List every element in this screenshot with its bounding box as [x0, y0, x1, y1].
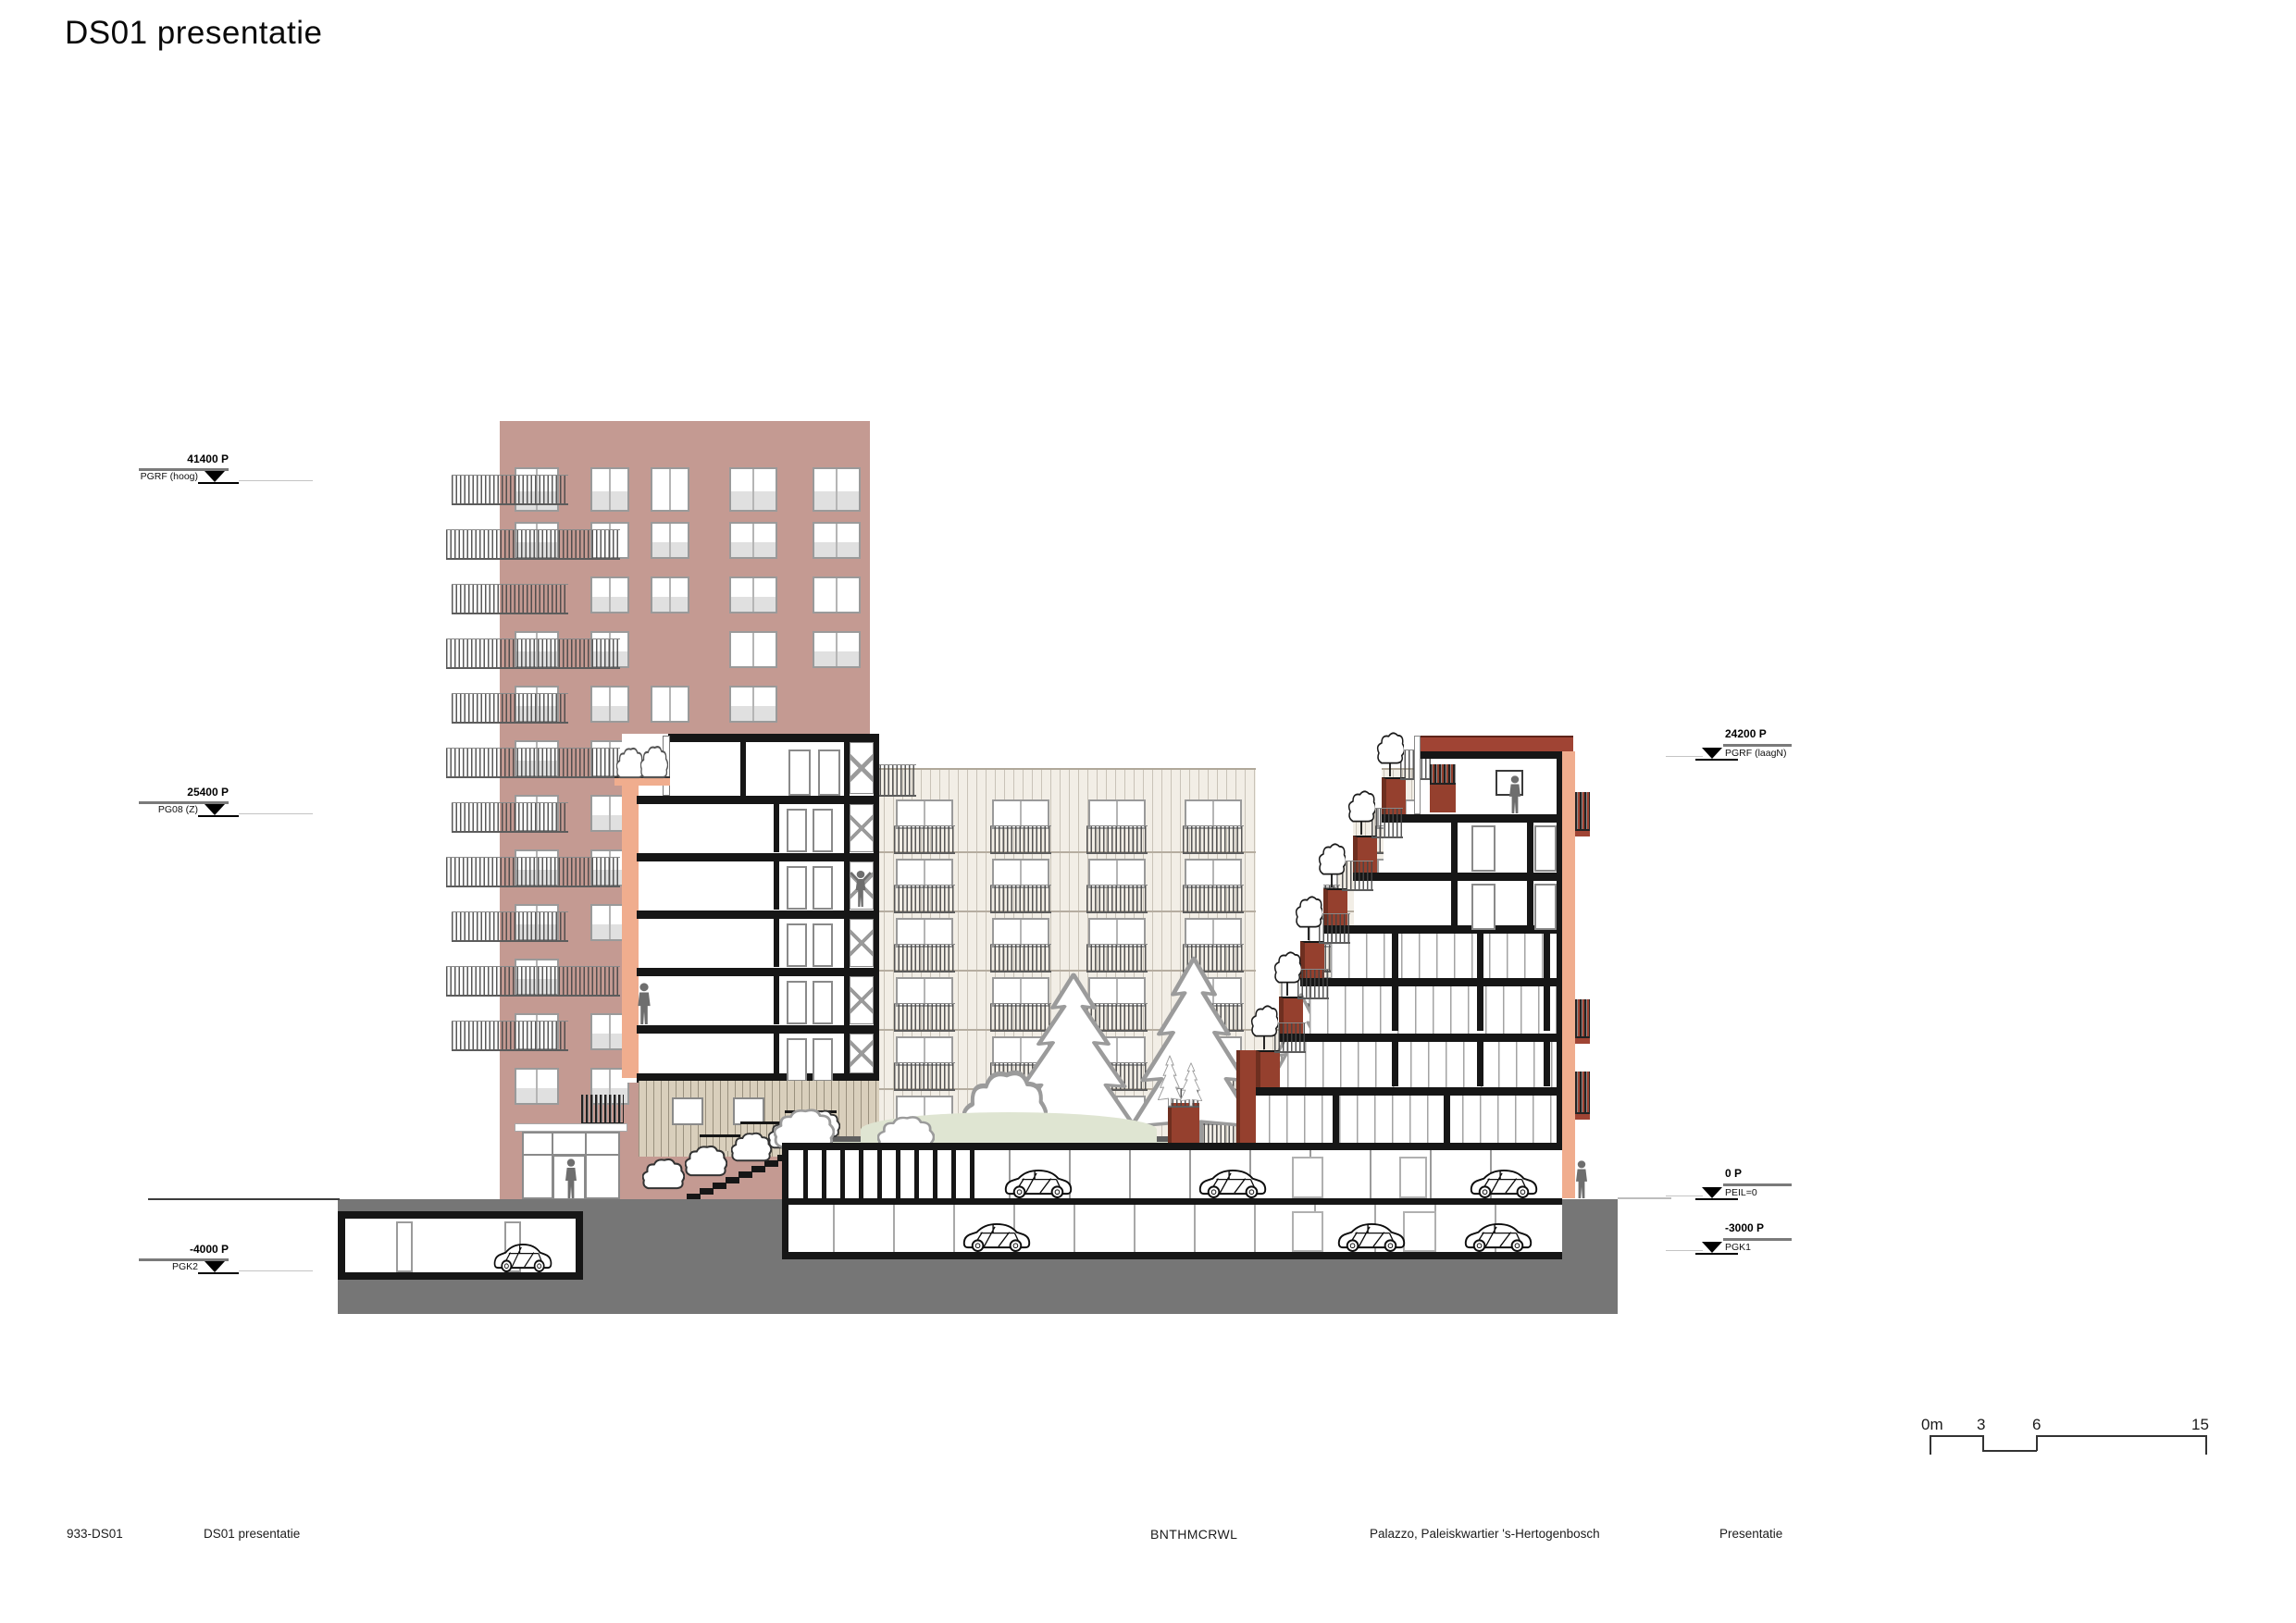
level-value: -4000 P — [139, 1243, 229, 1256]
window-mullion — [1020, 801, 1022, 827]
facade-balcony-railing — [894, 1003, 955, 1032]
tower-balcony-railing — [452, 1021, 568, 1051]
east-balcony-railing — [1575, 999, 1590, 1038]
east-facade-strip — [1562, 751, 1575, 1198]
window-mullion — [609, 797, 611, 830]
level-underline — [198, 482, 239, 484]
facade-balcony-railing — [1183, 885, 1244, 913]
window — [729, 631, 777, 668]
podium-window — [672, 1097, 703, 1125]
presentation-sheet: DS01 presentatie 41400 P PGRF (hoog) 254… — [0, 0, 2296, 1623]
parking-column — [970, 1150, 974, 1198]
window — [729, 467, 777, 512]
window — [590, 576, 629, 613]
tower-balcony-railing — [446, 638, 620, 669]
scale-label-3: 3 — [1977, 1416, 1985, 1434]
window-mullion — [924, 979, 925, 1005]
tower-balcony-railing — [452, 475, 568, 505]
parking-mid-slab — [788, 1198, 1562, 1205]
floor-slab — [1279, 1034, 1562, 1042]
car-icon — [1337, 1221, 1406, 1252]
parking-column — [1074, 1205, 1075, 1252]
tower-balcony-railing — [452, 693, 568, 724]
scale-label-6: 6 — [2032, 1416, 2041, 1434]
scale-tick — [2205, 1435, 2207, 1455]
window-mullion — [609, 469, 611, 510]
scale-step — [2036, 1435, 2038, 1451]
person-icon — [635, 983, 653, 1025]
terrace-railing — [1342, 861, 1373, 891]
parking-column — [1430, 1150, 1432, 1198]
parking-column — [803, 1150, 808, 1198]
window-mullion — [836, 469, 838, 510]
floor-slab — [637, 796, 879, 804]
terrace-tree-icon — [1347, 784, 1375, 836]
tower-balcony-railing — [446, 748, 620, 778]
level-underline — [1695, 759, 1738, 761]
east-balcony-railing — [1575, 1072, 1590, 1114]
parking-column — [822, 1150, 826, 1198]
base-wall — [1236, 1050, 1256, 1143]
level-name: PGK2 — [120, 1261, 198, 1272]
interior-wall — [1451, 823, 1458, 873]
parking-column — [893, 1205, 895, 1252]
level-triangle-icon — [205, 804, 225, 815]
window — [729, 522, 777, 559]
interior-wall — [774, 919, 779, 967]
person-icon — [1573, 1160, 1590, 1199]
interior-wall — [1544, 1042, 1550, 1086]
level-leader-line — [239, 813, 313, 814]
door-frame — [787, 923, 807, 967]
parking-door — [1403, 1211, 1436, 1252]
door-frame — [813, 981, 833, 1024]
terrace-tree-icon — [1318, 836, 1346, 888]
level-underline — [1695, 1198, 1738, 1200]
window — [590, 467, 629, 512]
door-frame — [813, 923, 833, 967]
terrace-railing — [1297, 969, 1329, 999]
facade-balcony-railing — [894, 944, 955, 973]
window-mullion — [752, 688, 754, 721]
interior-wall — [1392, 986, 1398, 1031]
window-mullion — [1020, 920, 1022, 946]
interior-wall — [1392, 1042, 1398, 1086]
ground-line — [148, 1198, 340, 1200]
level-value: 41400 P — [139, 452, 229, 465]
storefront-mullion — [585, 1132, 587, 1199]
shaft-brace-panel — [850, 1034, 874, 1073]
waving-person-icon — [848, 868, 874, 909]
glazed-floor-interior — [1251, 1087, 1562, 1143]
parking-column — [1129, 1150, 1131, 1198]
scale-step — [1982, 1435, 1984, 1451]
terrace-railing — [1319, 913, 1350, 944]
footer-drawing-title: DS01 presentatie — [204, 1527, 300, 1541]
door-frame — [787, 866, 807, 910]
parking-column — [951, 1150, 956, 1198]
window-mullion — [752, 524, 754, 557]
terrace-railing — [1371, 808, 1403, 838]
parking-column — [877, 1150, 882, 1198]
level-triangle-icon — [1702, 748, 1722, 759]
window-mullion — [752, 469, 754, 510]
door-frame — [813, 809, 833, 852]
parking-column — [896, 1150, 900, 1198]
stair-step — [751, 1166, 765, 1172]
level-line — [1723, 744, 1792, 747]
footer-architect: BNTHMCRWL — [1150, 1527, 1237, 1542]
level-triangle-icon — [205, 471, 225, 482]
window-mullion — [1020, 861, 1022, 886]
stair-step — [700, 1188, 714, 1195]
parking-column — [914, 1150, 919, 1198]
interior-wall — [774, 861, 779, 910]
balcony-edge-strip — [622, 782, 639, 1078]
facade-balcony-railing — [990, 944, 1051, 973]
stair-step — [713, 1183, 726, 1189]
interior-wall — [1451, 881, 1458, 931]
door-frame — [813, 1038, 833, 1082]
level-triangle-icon — [1702, 1242, 1722, 1253]
door-frame — [1471, 825, 1496, 872]
floor-slab — [1256, 1087, 1562, 1096]
parking-column — [1194, 1205, 1196, 1252]
basement-door — [396, 1221, 413, 1272]
facade-roof-railing — [875, 764, 916, 797]
door-frame — [787, 981, 807, 1024]
window-mullion — [1116, 920, 1118, 946]
window — [813, 631, 861, 668]
interior-wall — [740, 742, 746, 796]
stair-step — [726, 1177, 739, 1183]
shaft-wall — [874, 741, 879, 1083]
window-mullion — [669, 578, 671, 612]
roof-shrub-icon — [640, 744, 668, 779]
door-frame — [1471, 884, 1496, 930]
interior-wall — [774, 1034, 779, 1082]
facade-balcony-railing — [990, 885, 1051, 913]
interior-wall — [1477, 986, 1483, 1031]
window-mullion — [752, 633, 754, 666]
dark-balcony-railing — [581, 1095, 624, 1124]
floor-slab — [637, 1025, 879, 1034]
shaft-brace-panel — [850, 804, 874, 852]
roof-access-railing — [1430, 764, 1456, 785]
level-triangle-icon — [205, 1261, 225, 1272]
parking-column — [833, 1205, 835, 1252]
window-mullion — [924, 920, 925, 946]
level-line — [1723, 1238, 1792, 1241]
door-frame — [788, 750, 811, 796]
window-mullion — [1212, 920, 1214, 946]
ground-line — [1618, 1197, 1671, 1199]
door-frame — [787, 1038, 807, 1082]
tower-balcony-railing — [452, 911, 568, 942]
person-icon — [1507, 775, 1523, 814]
glazed-floor-interior — [1309, 978, 1562, 1034]
bush-icon — [642, 1157, 685, 1190]
interior-wall — [774, 976, 779, 1024]
level-name: PGRF (hoog) — [120, 471, 198, 482]
tower-balcony-railing — [452, 584, 568, 614]
window-mullion — [609, 1015, 611, 1048]
parking-column — [1254, 1205, 1256, 1252]
terrace-tree-icon — [1295, 889, 1322, 941]
parking-column — [1189, 1150, 1191, 1198]
facade-balcony-railing — [894, 825, 955, 854]
interior-wall — [1544, 934, 1550, 978]
parking-column — [1370, 1150, 1371, 1198]
parking-door — [1292, 1211, 1323, 1252]
parking-column — [933, 1150, 937, 1198]
window-mullion — [752, 578, 754, 612]
door-frame — [787, 809, 807, 852]
level-value: 24200 P — [1725, 727, 1767, 740]
level-value: -3000 P — [1725, 1221, 1764, 1234]
floor-slab — [637, 911, 879, 919]
window-mullion — [536, 1070, 538, 1103]
east-balcony-railing — [1575, 792, 1590, 831]
person-icon — [563, 1158, 579, 1199]
interior-wall — [1333, 1096, 1339, 1143]
level-name: PGK1 — [1725, 1242, 1751, 1253]
shaft-brace-panel — [850, 742, 874, 794]
window-mullion — [1212, 801, 1214, 827]
parking-column — [859, 1150, 863, 1198]
window — [729, 686, 777, 723]
entrance-canopy — [515, 1123, 627, 1132]
interior-wall — [1477, 1042, 1483, 1086]
window-mullion — [1116, 861, 1118, 886]
car-icon — [1470, 1168, 1538, 1198]
parking-wall — [782, 1143, 788, 1259]
level-leader-line — [239, 480, 313, 481]
floor-slab — [637, 853, 879, 861]
parking-level-1 — [788, 1205, 1562, 1252]
facade-balcony-railing — [1086, 825, 1148, 854]
tower-balcony-railing — [446, 966, 620, 997]
interior-wall — [1527, 823, 1533, 873]
window-mullion — [1212, 861, 1214, 886]
window — [590, 686, 629, 723]
parking-column — [1134, 1205, 1136, 1252]
window — [651, 576, 689, 613]
roof-parapet — [1414, 736, 1421, 814]
window-mullion — [609, 688, 611, 721]
car-icon — [962, 1221, 1031, 1252]
scale-tick — [1930, 1435, 1931, 1455]
level-value: 0 P — [1725, 1167, 1742, 1180]
interior-wall — [1527, 881, 1533, 931]
window — [813, 576, 861, 613]
level-leader-line — [1666, 756, 1703, 757]
footer-project: Palazzo, Paleiskwartier 's-Hertogenbosch — [1370, 1527, 1600, 1541]
window — [651, 686, 689, 723]
interior-wall — [1392, 934, 1398, 978]
window — [651, 467, 689, 512]
scale-segment — [2036, 1435, 2205, 1437]
scale-label-15: 15 — [2191, 1416, 2209, 1434]
level-line — [1723, 1183, 1792, 1186]
parking-column — [840, 1150, 845, 1198]
scale-segment — [1982, 1450, 2037, 1452]
floor-slab — [1353, 873, 1562, 881]
footer-drawing-number: 933-DS01 — [67, 1527, 123, 1541]
parking-door — [1399, 1157, 1427, 1198]
car-icon — [493, 1242, 552, 1272]
interior-wall — [1477, 934, 1483, 978]
scale-label-0: 0m — [1921, 1416, 1943, 1434]
car-icon — [1464, 1221, 1533, 1252]
level-leader-line — [1666, 1196, 1703, 1196]
parking-door — [1292, 1157, 1323, 1198]
window-mullion — [924, 801, 925, 827]
level-name: PEIL=0 — [1725, 1187, 1757, 1198]
bush-icon — [731, 1131, 772, 1162]
tower-balcony-railing — [446, 529, 620, 560]
level-underline — [198, 815, 239, 817]
terrace-tree-icon — [1250, 998, 1278, 1050]
shaft-brace-panel — [850, 919, 874, 967]
floor-slab — [1300, 978, 1562, 986]
tower-balcony-railing — [446, 857, 620, 887]
interior-wall — [1544, 986, 1550, 1031]
building-section-drawing — [0, 0, 2296, 1623]
facade-balcony-railing — [1086, 885, 1148, 913]
level-leader-line — [239, 1270, 313, 1271]
window-mullion — [836, 524, 838, 557]
window-mullion — [924, 861, 925, 886]
terrace-tree-icon — [1376, 725, 1404, 777]
door-frame — [818, 750, 840, 796]
roof-band — [1414, 736, 1573, 751]
terrace-tree-icon — [1273, 945, 1301, 997]
facade-balcony-railing — [990, 825, 1051, 854]
shaft-brace-panel — [850, 976, 874, 1024]
level-name: PGRF (laagN) — [1725, 748, 1787, 759]
window-mullion — [836, 578, 838, 612]
floor-slab — [637, 968, 879, 976]
tower-balcony-railing — [452, 802, 568, 833]
parking-floor-slab — [782, 1252, 1562, 1259]
small-tree-icon — [1179, 1062, 1203, 1107]
parking-column — [953, 1205, 955, 1252]
window-mullion — [609, 906, 611, 939]
car-icon — [1004, 1168, 1073, 1198]
door-frame — [1534, 884, 1557, 930]
car-icon — [1198, 1168, 1267, 1198]
level-leader-line — [1666, 1250, 1703, 1251]
window-mullion — [669, 524, 671, 557]
terrace-parapet — [1256, 1050, 1280, 1087]
footer-phase: Presentatie — [1719, 1527, 1782, 1541]
window-mullion — [836, 633, 838, 666]
roof-slab — [1414, 751, 1573, 759]
level-value: 25400 P — [139, 786, 229, 799]
window-mullion — [609, 578, 611, 612]
door-frame — [813, 866, 833, 910]
facade-balcony-railing — [1183, 825, 1244, 854]
window — [515, 1068, 559, 1105]
door-frame — [1534, 825, 1557, 872]
parking-roof-slab — [782, 1143, 1562, 1150]
window-mullion — [924, 1038, 925, 1064]
interior-wall — [774, 804, 779, 852]
window-mullion — [1116, 801, 1118, 827]
window — [813, 522, 861, 559]
facade-balcony-railing — [894, 885, 955, 913]
terrace-railing — [1274, 1022, 1306, 1053]
stair-step — [738, 1171, 752, 1178]
window — [651, 522, 689, 559]
level-underline — [1695, 1253, 1738, 1255]
interior-wall — [1444, 1096, 1450, 1143]
level-triangle-icon — [1702, 1187, 1722, 1198]
scale-segment — [1930, 1435, 1983, 1437]
window-mullion — [669, 469, 671, 510]
window — [813, 467, 861, 512]
parking-level-0 — [788, 1150, 1562, 1198]
level-underline — [198, 1272, 239, 1274]
level-name: PG08 (Z) — [120, 804, 198, 815]
window-mullion — [669, 688, 671, 721]
floor-slab — [1382, 814, 1562, 823]
bush-icon — [685, 1144, 727, 1177]
window — [729, 576, 777, 613]
facade-balcony-railing — [894, 1062, 955, 1091]
